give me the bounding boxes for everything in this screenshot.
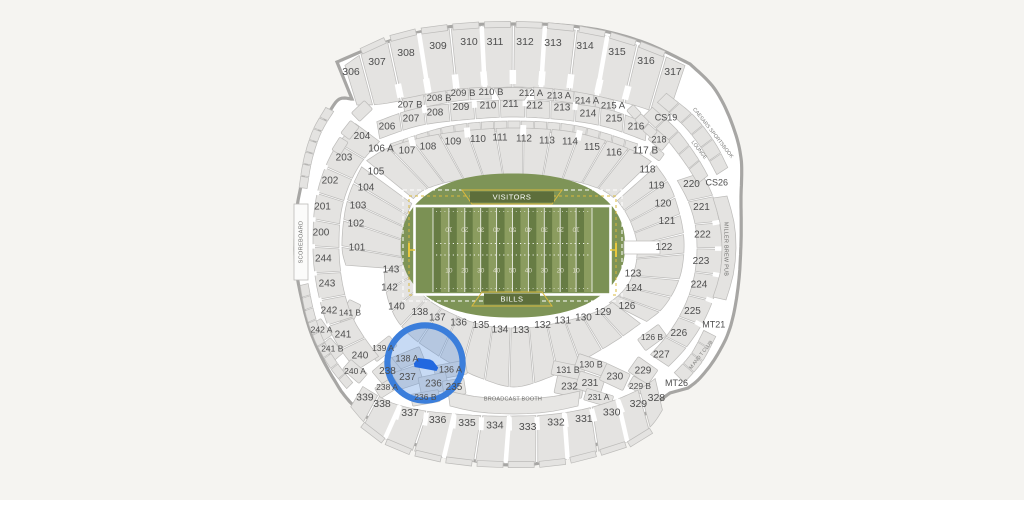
svg-text:142: 142 [381,283,398,294]
svg-text:242 A: 242 A [311,324,333,334]
svg-text:212 A: 212 A [519,88,544,99]
svg-text:105: 105 [368,167,385,178]
svg-text:314: 314 [576,40,594,52]
svg-text:202: 202 [322,176,339,187]
svg-text:339: 339 [356,392,374,404]
svg-text:331: 331 [575,413,593,425]
svg-text:107: 107 [399,146,416,157]
svg-text:136 A: 136 A [439,364,462,374]
svg-text:40: 40 [525,268,533,275]
svg-text:332: 332 [547,417,565,429]
svg-text:231: 231 [582,378,599,389]
svg-text:216: 216 [628,122,645,133]
svg-text:315: 315 [608,46,626,58]
svg-text:MT26: MT26 [665,378,688,388]
svg-text:313: 313 [544,37,562,49]
svg-text:334: 334 [486,420,504,432]
svg-text:143: 143 [383,265,400,276]
svg-text:241 B: 241 B [321,343,344,353]
svg-text:20: 20 [557,268,565,275]
svg-text:226: 226 [670,328,687,339]
svg-text:224: 224 [691,280,708,291]
svg-text:135: 135 [473,320,490,331]
svg-text:30: 30 [477,268,485,275]
svg-text:307: 307 [368,56,386,68]
svg-text:207 B: 207 B [398,100,423,111]
svg-text:336: 336 [429,414,447,426]
svg-text:241: 241 [335,330,352,341]
svg-text:208 B: 208 B [427,93,452,104]
svg-text:109: 109 [445,137,462,148]
svg-text:209: 209 [453,102,470,113]
svg-text:102: 102 [348,219,365,230]
svg-text:229: 229 [635,365,652,376]
svg-text:213: 213 [554,103,571,114]
svg-text:10: 10 [572,225,580,232]
svg-text:237: 237 [399,372,416,383]
svg-text:113: 113 [539,136,555,147]
svg-text:317: 317 [664,66,682,78]
svg-text:335: 335 [458,417,476,429]
svg-text:231 A: 231 A [588,392,610,402]
svg-text:112: 112 [516,134,532,145]
svg-text:124: 124 [626,283,643,294]
svg-text:103: 103 [350,201,367,212]
svg-text:208: 208 [427,108,444,119]
svg-text:CS26: CS26 [706,177,729,187]
svg-text:337: 337 [401,407,419,419]
svg-text:236: 236 [425,378,442,389]
svg-text:30: 30 [477,225,485,232]
svg-text:131: 131 [554,316,571,327]
svg-text:218: 218 [651,134,666,144]
svg-text:BROADCAST BOOTH: BROADCAST BOOTH [484,396,542,402]
svg-text:209 B: 209 B [451,88,476,99]
svg-text:114: 114 [562,137,578,148]
svg-text:40: 40 [524,225,532,232]
svg-text:119: 119 [649,181,665,192]
svg-text:328: 328 [648,392,666,404]
svg-text:117 B: 117 B [633,146,659,157]
svg-text:110: 110 [470,134,486,145]
svg-text:133: 133 [513,325,530,336]
svg-text:200: 200 [313,228,330,239]
svg-text:118: 118 [640,165,656,176]
svg-text:139 A: 139 A [372,343,394,353]
svg-text:235: 235 [446,382,463,393]
svg-text:140: 140 [388,302,405,313]
svg-text:215 A: 215 A [601,101,626,112]
svg-text:306: 306 [342,66,360,78]
svg-text:20: 20 [556,225,564,232]
svg-text:30: 30 [540,225,548,232]
svg-text:10: 10 [445,268,453,275]
svg-text:201: 201 [314,202,331,213]
svg-text:10: 10 [445,225,453,232]
svg-text:138: 138 [411,307,428,318]
svg-text:221: 221 [693,202,710,213]
svg-text:316: 316 [637,55,655,67]
svg-text:126 B: 126 B [641,332,664,342]
svg-text:213 A: 213 A [547,91,572,102]
svg-text:CS19: CS19 [655,112,678,122]
svg-text:212: 212 [526,101,543,112]
svg-text:204: 204 [354,131,371,142]
svg-text:230: 230 [606,372,623,383]
svg-text:10: 10 [572,268,580,275]
svg-text:310: 310 [460,36,478,48]
svg-text:203: 203 [336,153,353,164]
svg-text:329: 329 [630,398,648,410]
svg-text:50: 50 [509,225,517,232]
svg-text:132: 132 [534,320,551,331]
svg-text:130: 130 [575,313,592,324]
svg-text:40: 40 [493,268,501,275]
svg-text:115: 115 [584,142,600,153]
svg-text:VISITORS: VISITORS [493,192,532,201]
svg-text:223: 223 [693,256,710,267]
svg-text:123: 123 [625,269,642,280]
svg-text:236 B: 236 B [414,392,437,402]
svg-text:121: 121 [659,216,676,227]
svg-text:309: 309 [429,40,447,52]
svg-text:227: 227 [653,350,670,361]
svg-text:108: 108 [420,142,437,153]
svg-text:122: 122 [656,242,673,253]
svg-text:130 B: 130 B [579,359,603,369]
svg-text:238 A: 238 A [376,382,398,392]
svg-text:312: 312 [516,36,534,48]
svg-text:137: 137 [429,312,446,323]
svg-text:232: 232 [561,381,578,392]
svg-text:136: 136 [450,317,467,328]
svg-text:240 A: 240 A [344,366,366,376]
svg-text:129: 129 [595,307,612,318]
svg-text:215: 215 [606,114,623,125]
svg-text:229 B: 229 B [629,381,652,391]
svg-text:111: 111 [492,133,508,144]
svg-text:106 A: 106 A [368,144,394,155]
svg-text:210 B: 210 B [479,87,504,98]
svg-text:308: 308 [397,47,415,59]
svg-text:126: 126 [619,301,636,312]
svg-text:210: 210 [480,101,497,112]
svg-text:220: 220 [683,179,700,190]
svg-text:330: 330 [603,407,621,419]
svg-text:BILLS: BILLS [501,294,524,303]
svg-text:MILLER BREW PUB: MILLER BREW PUB [723,222,729,276]
svg-text:101: 101 [349,243,366,254]
svg-text:244: 244 [315,253,332,264]
svg-text:116: 116 [606,148,622,159]
svg-text:MT21: MT21 [702,319,725,329]
svg-text:240: 240 [352,351,369,362]
svg-text:238: 238 [379,366,396,377]
svg-text:242: 242 [321,306,338,317]
svg-text:134: 134 [492,325,509,336]
svg-text:222: 222 [694,230,711,241]
svg-text:311: 311 [487,36,504,48]
svg-text:338: 338 [373,398,391,410]
svg-text:206: 206 [379,122,396,133]
svg-text:120: 120 [655,199,672,210]
svg-text:SCOREBOARD: SCOREBOARD [298,221,304,264]
svg-text:141 B: 141 B [339,307,362,317]
svg-text:30: 30 [541,268,549,275]
svg-text:333: 333 [519,421,537,433]
svg-text:20: 20 [461,268,469,275]
svg-text:243: 243 [319,279,336,290]
svg-text:50: 50 [509,268,517,275]
svg-text:214 A: 214 A [575,96,600,107]
svg-text:207: 207 [403,114,420,125]
svg-text:131 B: 131 B [556,365,580,375]
svg-text:214: 214 [580,109,597,120]
svg-text:104: 104 [358,183,375,194]
svg-text:40: 40 [493,225,501,232]
svg-text:20: 20 [461,225,469,232]
svg-text:225: 225 [684,306,701,317]
svg-text:138 A: 138 A [395,353,418,363]
svg-text:211: 211 [503,99,519,110]
